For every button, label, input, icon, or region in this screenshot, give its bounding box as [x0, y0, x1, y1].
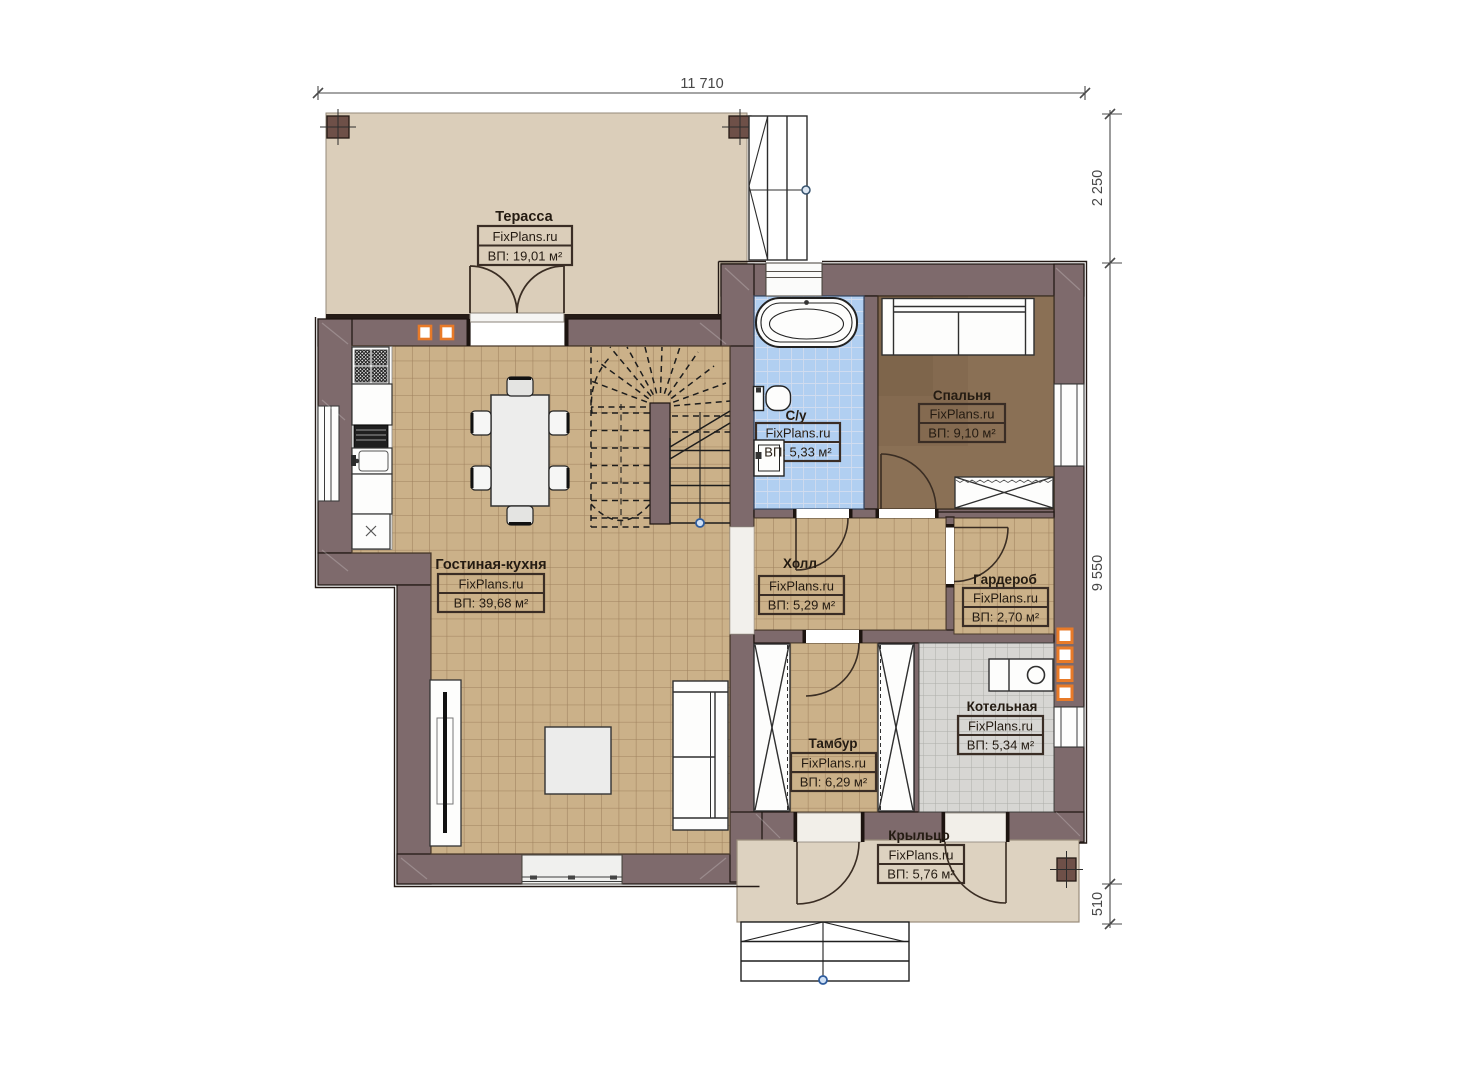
svg-text:510: 510	[1090, 892, 1106, 916]
svg-text:FixPlans.ru: FixPlans.ru	[458, 577, 523, 592]
svg-text:Крыльцо: Крыльцо	[888, 828, 949, 843]
svg-text:ВП: 5,29 м²: ВП: 5,29 м²	[768, 598, 836, 613]
svg-text:9 550: 9 550	[1090, 555, 1106, 591]
svg-text:ВП: 6,29 м²: ВП: 6,29 м²	[800, 775, 868, 790]
svg-text:ВП: 9,10 м²: ВП: 9,10 м²	[928, 426, 996, 441]
svg-text:Холл: Холл	[783, 556, 817, 571]
svg-text:ВП: 2,70 м²: ВП: 2,70 м²	[972, 610, 1040, 625]
svg-text:FixPlans.ru: FixPlans.ru	[769, 579, 834, 594]
svg-text:Тамбур: Тамбур	[809, 736, 858, 751]
svg-text:FixPlans.ru: FixPlans.ru	[801, 756, 866, 771]
svg-text:FixPlans.ru: FixPlans.ru	[888, 848, 953, 863]
svg-text:FixPlans.ru: FixPlans.ru	[492, 229, 557, 244]
svg-text:2 250: 2 250	[1090, 170, 1106, 206]
svg-text:Гостиная-кухня: Гостиная-кухня	[435, 557, 546, 573]
svg-text:ВП: 5,76 м²: ВП: 5,76 м²	[887, 867, 955, 882]
svg-text:Гардероб: Гардероб	[973, 572, 1037, 587]
svg-text:ВП: 5,34 м²: ВП: 5,34 м²	[967, 738, 1035, 753]
svg-text:С/у: С/у	[785, 408, 807, 423]
svg-text:FixPlans.ru: FixPlans.ru	[929, 407, 994, 422]
svg-text:ВП: 39,68 м²: ВП: 39,68 м²	[454, 596, 529, 611]
svg-text:Спальня: Спальня	[933, 388, 991, 403]
svg-text:ВП: 19,01 м²: ВП: 19,01 м²	[488, 249, 563, 264]
svg-text:Терасса: Терасса	[495, 209, 553, 225]
svg-text:FixPlans.ru: FixPlans.ru	[968, 719, 1033, 734]
svg-text:ВП: 5,33 м²: ВП: 5,33 м²	[764, 445, 832, 460]
svg-text:11 710: 11 710	[680, 76, 723, 92]
svg-text:Котельная: Котельная	[967, 699, 1038, 714]
svg-text:FixPlans.ru: FixPlans.ru	[765, 426, 830, 441]
svg-text:FixPlans.ru: FixPlans.ru	[973, 591, 1038, 606]
